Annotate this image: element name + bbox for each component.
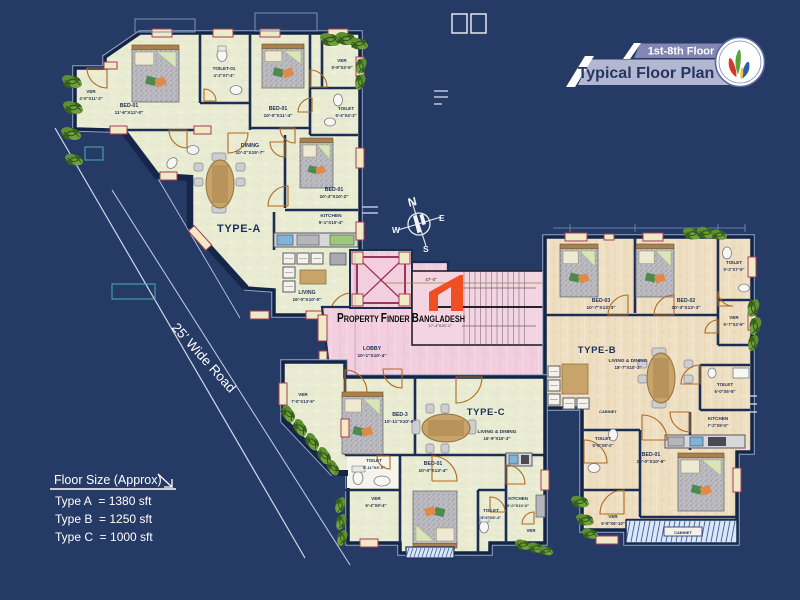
svg-text:Floor Size (Approx): Floor Size (Approx) xyxy=(54,473,162,487)
svg-text:16′-9″X10′-3″: 16′-9″X10′-3″ xyxy=(484,436,512,441)
svg-text:VER: VER xyxy=(526,528,536,533)
svg-text:5′-11″X5′-0″: 5′-11″X5′-0″ xyxy=(363,465,385,470)
svg-text:BED-01: BED-01 xyxy=(325,187,344,193)
svg-text:TYPE-C: TYPE-C xyxy=(467,407,505,418)
svg-text:5′-7″X4′-9″: 5′-7″X4′-9″ xyxy=(723,322,744,327)
svg-text:5′-0″X8′-2″: 5′-0″X8′-2″ xyxy=(592,443,613,448)
svg-text:TOILET-01: TOILET-01 xyxy=(213,66,236,71)
svg-text:VER: VER xyxy=(729,315,739,320)
svg-text:10′-4″X10′-2″: 10′-4″X10′-2″ xyxy=(319,194,349,200)
svg-text:Type A = 1380 sft: Type A = 1380 sft xyxy=(55,494,152,508)
svg-text:CABINET: CABINET xyxy=(599,409,617,414)
svg-text:5′-2″X7′-9″: 5′-2″X7′-9″ xyxy=(723,267,744,272)
svg-text:47′-0″: 47′-0″ xyxy=(425,277,437,282)
svg-text:KITCHEN: KITCHEN xyxy=(708,416,729,421)
svg-text:E: E xyxy=(439,213,445,223)
svg-text:LIVING: LIVING xyxy=(298,290,315,296)
svg-text:VER: VER xyxy=(298,392,308,397)
svg-text:4′-2″X7′-4″: 4′-2″X7′-4″ xyxy=(213,73,234,78)
svg-text:4′-0″X11′-3″: 4′-0″X11′-3″ xyxy=(79,96,102,101)
svg-text:LIVING & DINING: LIVING & DINING xyxy=(609,358,648,364)
svg-text:BED-01: BED-01 xyxy=(120,103,139,109)
svg-text:BED-03: BED-03 xyxy=(592,298,611,304)
svg-text:7′-0″X13′-5″: 7′-0″X13′-5″ xyxy=(291,399,314,404)
svg-text:1st-8th Floor: 1st-8th Floor xyxy=(648,46,715,58)
svg-text:Type C = 1000 sft: Type C = 1000 sft xyxy=(55,530,153,544)
svg-text:5′-9″X3′-9″: 5′-9″X3′-9″ xyxy=(331,65,352,70)
svg-text:Type B = 1250 sft: Type B = 1250 sft xyxy=(55,512,153,526)
svg-text:TYPE-B: TYPE-B xyxy=(578,345,616,356)
svg-text:10′-0″X11′-4″: 10′-0″X11′-4″ xyxy=(264,113,294,119)
svg-text:TOILET: TOILET xyxy=(483,508,499,513)
svg-text:4′-1″X8′-4″: 4′-1″X8′-4″ xyxy=(481,515,501,520)
svg-text:S: S xyxy=(423,244,429,254)
svg-text:7′-2″X5′-0″: 7′-2″X5′-0″ xyxy=(707,423,728,428)
svg-text:TOILET: TOILET xyxy=(595,436,611,441)
svg-text:10′-2″X15′-7″: 10′-2″X15′-7″ xyxy=(235,150,265,156)
svg-text:LOBBY: LOBBY xyxy=(363,346,382,352)
svg-text:KITCHEN: KITCHEN xyxy=(508,496,528,501)
svg-text:BED-01: BED-01 xyxy=(642,452,661,458)
svg-text:16′-0″X10′-0″: 16′-0″X10′-0″ xyxy=(292,297,322,303)
svg-text:VER: VER xyxy=(608,514,618,519)
svg-text:5′-5″X6′-10″: 5′-5″X6′-10″ xyxy=(601,521,624,526)
svg-text:10′-1″X10′-4″: 10′-1″X10′-4″ xyxy=(357,353,387,359)
svg-text:LIVING & DINING: LIVING & DINING xyxy=(478,429,517,435)
svg-text:VER: VER xyxy=(337,58,347,63)
svg-text:18′-7″X10′-1″: 18′-7″X10′-1″ xyxy=(615,365,643,370)
svg-text:KITCHEN: KITCHEN xyxy=(320,213,342,219)
svg-text:13′-0″X10′-9″: 13′-0″X10′-9″ xyxy=(636,459,666,465)
svg-text:W: W xyxy=(392,225,401,235)
svg-text:10′-11″X10′-0″: 10′-11″X10′-0″ xyxy=(384,419,416,425)
svg-text:VER: VER xyxy=(371,496,381,501)
svg-text:5′-0″X10′-0″: 5′-0″X10′-0″ xyxy=(507,503,529,508)
svg-text:5′-4″X4′-3″: 5′-4″X4′-3″ xyxy=(335,113,356,118)
svg-text:BED-01: BED-01 xyxy=(269,106,288,112)
svg-text:BED-02: BED-02 xyxy=(677,298,696,304)
svg-text:TOILET: TOILET xyxy=(726,260,742,265)
svg-text:5′-1″X10′-4″: 5′-1″X10′-4″ xyxy=(319,220,344,225)
svg-text:17′-4″X20′-1″: 17′-4″X20′-1″ xyxy=(428,323,452,328)
svg-text:CABINET: CABINET xyxy=(674,530,692,535)
svg-text:BED-01: BED-01 xyxy=(424,461,443,467)
svg-text:DINING: DINING xyxy=(241,143,259,149)
svg-text:6′-0″X5′-8″: 6′-0″X5′-8″ xyxy=(714,389,735,394)
svg-text:TOILET: TOILET xyxy=(366,458,382,463)
svg-text:TYPE-A: TYPE-A xyxy=(217,223,261,235)
svg-text:TOILET: TOILET xyxy=(717,382,733,387)
svg-text:10′-7″X13′-3″: 10′-7″X13′-3″ xyxy=(586,305,616,311)
svg-text:Typical Floor Plan: Typical Floor Plan xyxy=(578,65,715,82)
svg-text:11′-6″X12′-0″: 11′-6″X12′-0″ xyxy=(115,110,145,116)
svg-text:TOILET: TOILET xyxy=(338,106,354,111)
svg-text:10′-3″X13′-3″: 10′-3″X13′-3″ xyxy=(671,305,701,311)
svg-text:VER: VER xyxy=(86,89,96,94)
svg-text:6′-4″X9′-4″: 6′-4″X9′-4″ xyxy=(365,503,386,508)
svg-text:10′-0″X13′-4″: 10′-0″X13′-4″ xyxy=(418,468,448,474)
svg-text:BED-3: BED-3 xyxy=(392,412,408,418)
